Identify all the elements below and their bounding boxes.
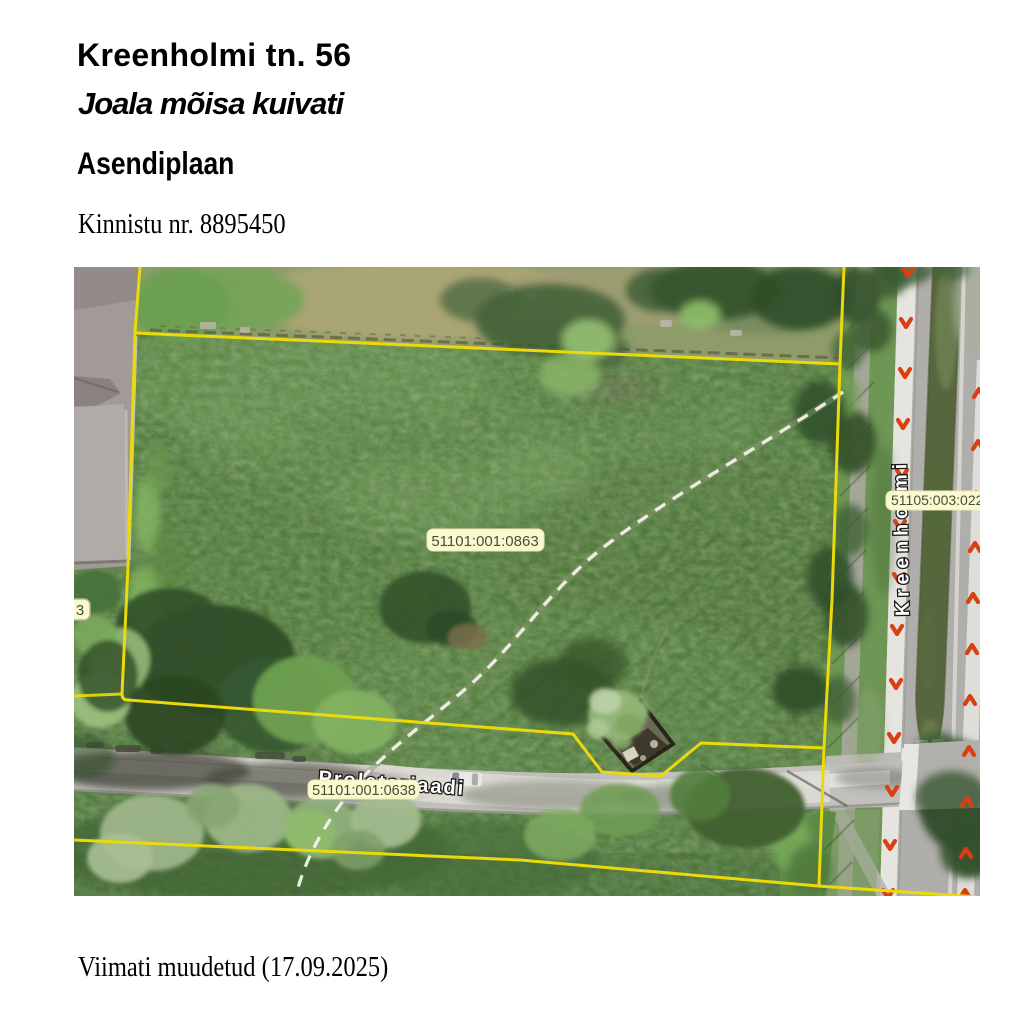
svg-text:51101:001:0863: 51101:001:0863 [431,533,538,550]
svg-text:3: 3 [76,602,84,619]
svg-text:Kreenholmi: Kreenholmi [889,459,914,617]
svg-text:51105:003:022: 51105:003:022 [891,492,980,508]
svg-text:51101:001:0638: 51101:001:0638 [312,783,416,799]
